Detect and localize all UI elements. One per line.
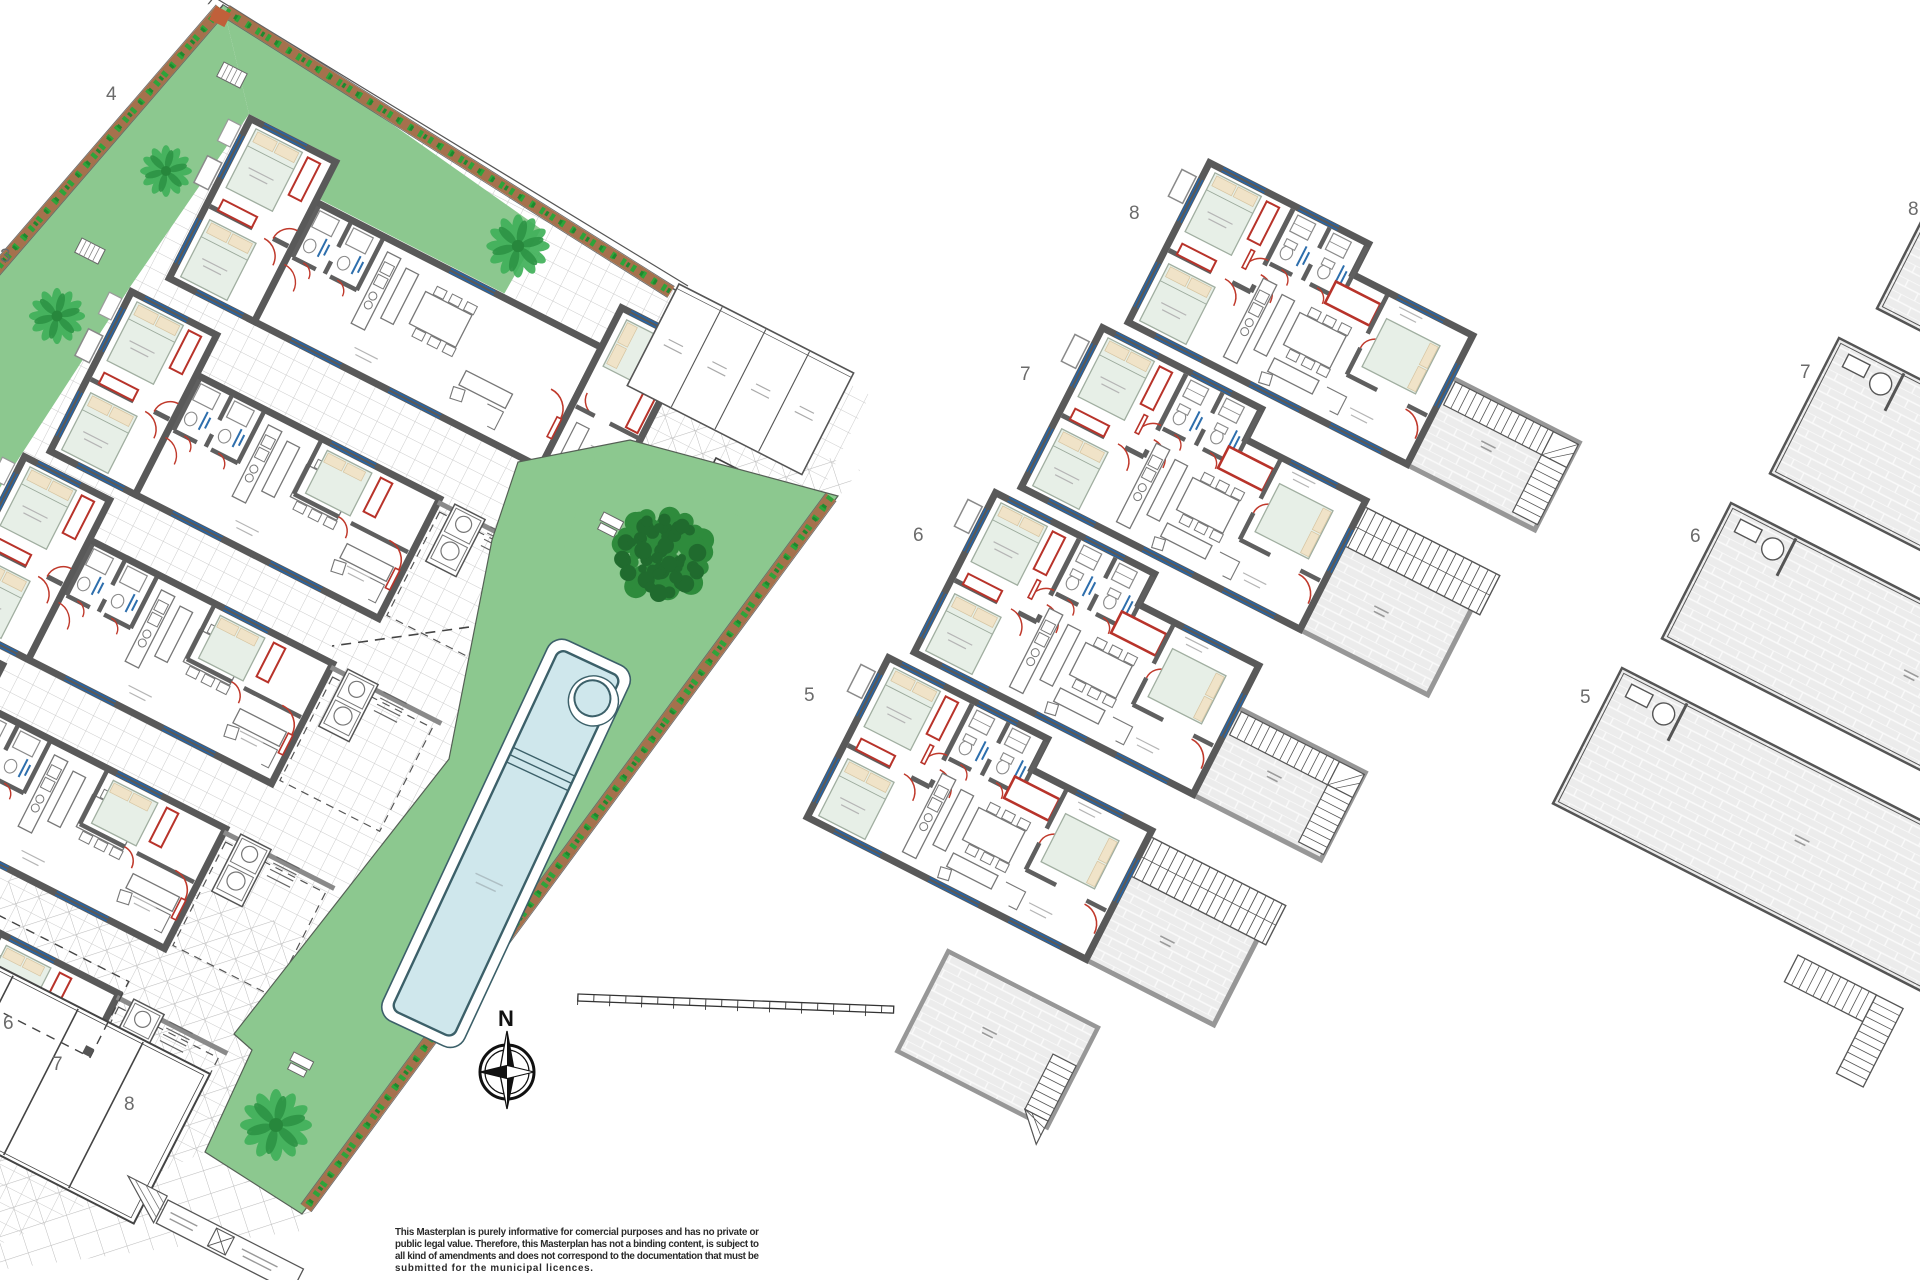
svg-text:7: 7 [1800, 362, 1811, 383]
svg-text:submitted for the municipal li: submitted for the municipal licences. [395, 1263, 593, 1274]
svg-text:5: 5 [804, 685, 815, 706]
svg-text:7: 7 [52, 1054, 63, 1075]
svg-text:4: 4 [106, 84, 117, 105]
svg-text:6: 6 [913, 525, 924, 546]
svg-text:3: 3 [0, 246, 11, 267]
svg-text:public legal value. Therefore,: public legal value. Therefore, this Mast… [395, 1239, 759, 1250]
svg-text:all kind of amendments and doe: all kind of amendments and does not corr… [395, 1251, 760, 1262]
svg-text:N: N [498, 1006, 514, 1031]
svg-text:This Masterplan is purely info: This Masterplan is purely informative fo… [395, 1227, 759, 1238]
svg-text:6: 6 [1690, 526, 1701, 547]
svg-text:6: 6 [3, 1013, 14, 1034]
svg-text:8: 8 [1908, 199, 1919, 220]
svg-text:8: 8 [1129, 203, 1140, 224]
svg-text:7: 7 [1020, 364, 1031, 385]
svg-text:8: 8 [124, 1094, 135, 1115]
svg-text:5: 5 [1580, 687, 1591, 708]
